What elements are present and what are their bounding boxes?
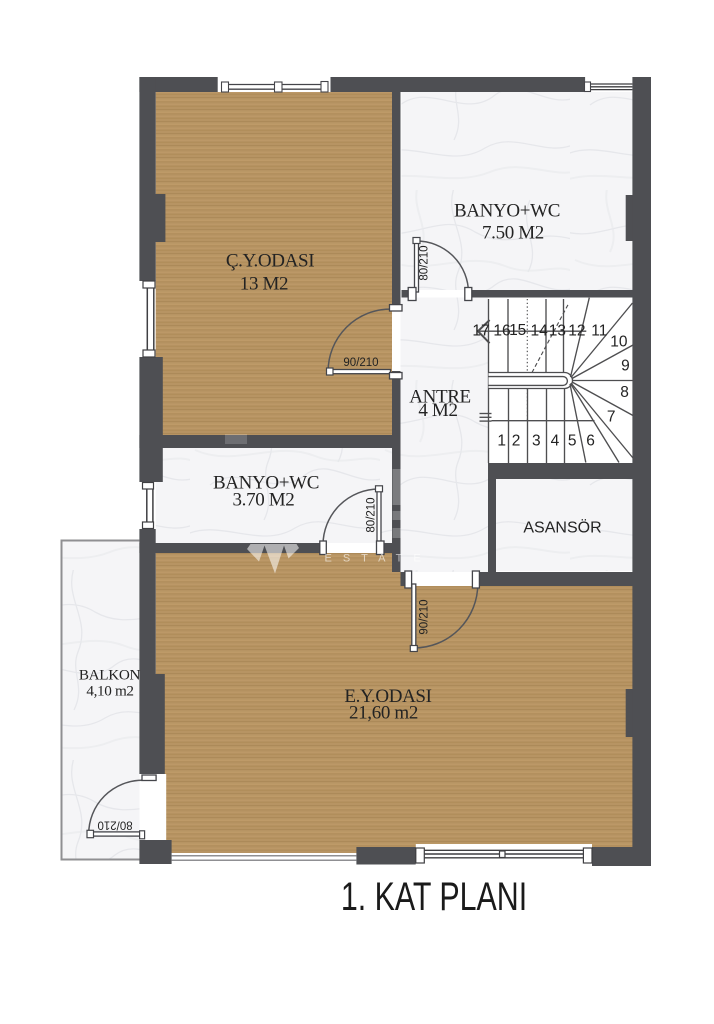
svg-text:16: 16: [493, 322, 510, 339]
svg-text:BALKON: BALKON: [79, 666, 141, 683]
svg-text:21,60 m2: 21,60 m2: [349, 702, 418, 723]
svg-text:3.70 M2: 3.70 M2: [233, 489, 295, 510]
svg-text:14: 14: [530, 322, 548, 339]
svg-text:1. KAT PLANI: 1. KAT PLANI: [341, 874, 527, 919]
svg-text:3: 3: [532, 432, 541, 449]
svg-text:80/210: 80/210: [366, 497, 378, 532]
svg-text:ESTATE: ESTATE: [325, 553, 432, 565]
svg-text:BANYO+WC: BANYO+WC: [454, 200, 560, 221]
svg-text:12: 12: [568, 322, 585, 339]
svg-text:13 M2: 13 M2: [240, 273, 288, 294]
svg-text:15: 15: [509, 322, 526, 339]
svg-text:80/210: 80/210: [419, 245, 431, 280]
svg-text:13: 13: [549, 323, 566, 340]
svg-text:Ç.Y.ODASI: Ç.Y.ODASI: [226, 250, 314, 271]
svg-text:4 M2: 4 M2: [418, 400, 457, 421]
svg-text:90/210: 90/210: [343, 357, 378, 369]
svg-text:4,10 m2: 4,10 m2: [86, 682, 133, 699]
svg-text:17: 17: [472, 322, 489, 339]
svg-text:7: 7: [607, 408, 616, 425]
svg-text:10: 10: [610, 334, 628, 351]
svg-text:8: 8: [620, 384, 629, 401]
svg-text:ASANSÖR: ASANSÖR: [523, 518, 601, 536]
svg-text:4: 4: [551, 432, 560, 449]
svg-text:80/210: 80/210: [97, 818, 132, 830]
svg-text:6: 6: [586, 432, 595, 449]
svg-text:90/210: 90/210: [419, 599, 431, 634]
svg-text:2: 2: [512, 432, 521, 449]
svg-text:5: 5: [568, 432, 577, 449]
svg-text:1: 1: [497, 432, 506, 449]
svg-text:9: 9: [621, 358, 630, 375]
svg-text:7.50 M2: 7.50 M2: [482, 222, 544, 243]
svg-text:11: 11: [591, 322, 607, 339]
